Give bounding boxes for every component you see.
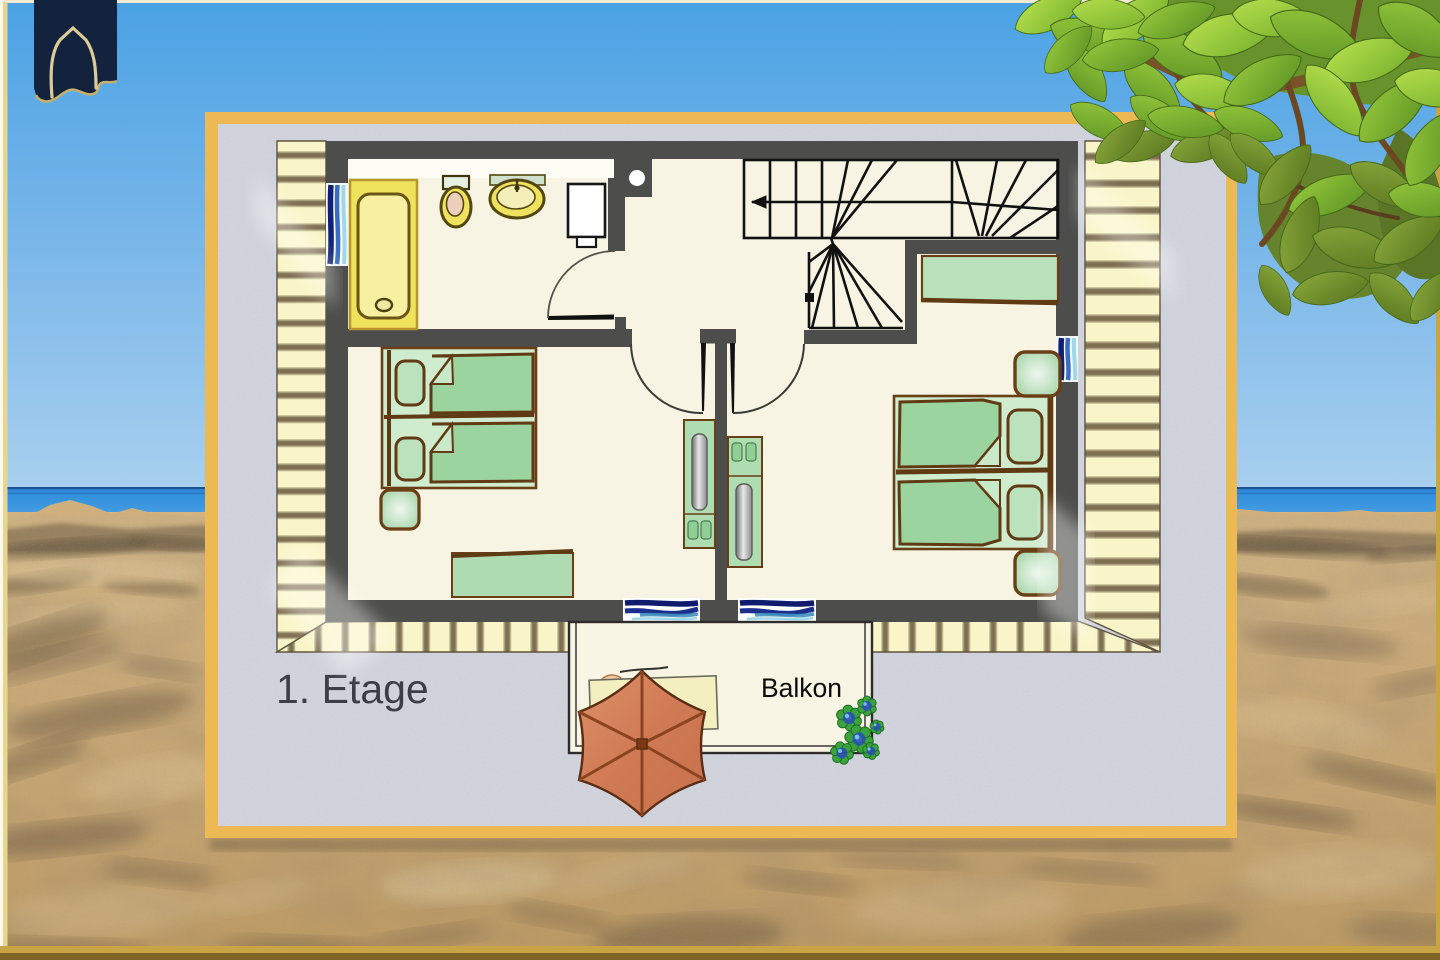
svg-text:Balkon: Balkon [761, 673, 842, 703]
svg-text:1. Etage: 1. Etage [276, 666, 429, 712]
